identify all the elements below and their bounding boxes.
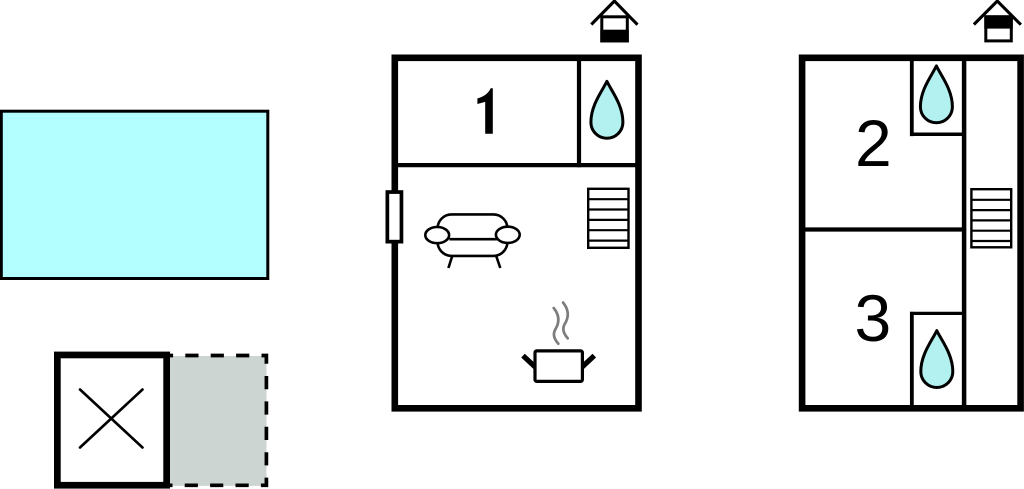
svg-text:3: 3 <box>854 281 891 355</box>
svg-text:2: 2 <box>855 106 892 180</box>
